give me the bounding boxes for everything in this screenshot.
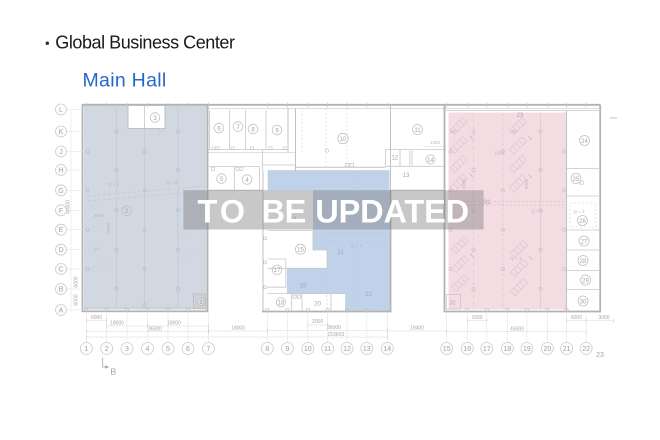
svg-text:24: 24 bbox=[581, 139, 588, 145]
svg-text:9: 9 bbox=[285, 346, 289, 353]
svg-text:L: L bbox=[59, 107, 63, 114]
svg-text:32: 32 bbox=[449, 301, 455, 307]
svg-text:14: 14 bbox=[427, 158, 434, 164]
svg-text:TOBEUPDATED: TOBEUPDATED bbox=[198, 193, 469, 229]
svg-text:Q = 3: Q = 3 bbox=[573, 209, 585, 214]
svg-text:14: 14 bbox=[383, 346, 391, 353]
svg-text:153603: 153603 bbox=[327, 332, 344, 338]
svg-text:V3: V3 bbox=[94, 247, 100, 252]
svg-text:18000: 18000 bbox=[110, 321, 124, 327]
svg-text:10: 10 bbox=[304, 346, 312, 353]
svg-text:29: 29 bbox=[582, 278, 589, 284]
svg-text:2: 2 bbox=[105, 346, 109, 353]
svg-text:11: 11 bbox=[414, 128, 421, 134]
svg-text:17: 17 bbox=[274, 268, 281, 274]
svg-text:19: 19 bbox=[523, 346, 531, 353]
svg-text:12: 12 bbox=[391, 156, 398, 162]
svg-text:22: 22 bbox=[365, 292, 372, 298]
svg-text:36000: 36000 bbox=[327, 325, 341, 331]
svg-text:F: F bbox=[59, 208, 63, 215]
svg-text:17: 17 bbox=[483, 346, 491, 353]
svg-text:23: 23 bbox=[596, 352, 604, 359]
svg-text:6000: 6000 bbox=[91, 315, 102, 321]
svg-text:9000: 9000 bbox=[106, 222, 111, 233]
svg-text:6000: 6000 bbox=[524, 178, 529, 189]
svg-text:36000: 36000 bbox=[148, 326, 162, 332]
svg-text:15: 15 bbox=[297, 248, 304, 254]
svg-text:1300: 1300 bbox=[494, 151, 505, 156]
svg-text:16: 16 bbox=[463, 346, 471, 353]
svg-text:4: 4 bbox=[146, 346, 150, 353]
svg-text:Main Hall: Main Hall bbox=[83, 70, 167, 92]
svg-text:23: 23 bbox=[517, 113, 524, 119]
svg-text:Q = 3: Q = 3 bbox=[166, 180, 178, 185]
svg-text:25: 25 bbox=[573, 177, 580, 183]
svg-text:15: 15 bbox=[443, 346, 451, 353]
svg-text:6000: 6000 bbox=[462, 178, 467, 189]
svg-text:Q = 3: Q = 3 bbox=[510, 256, 522, 261]
svg-text:Q = 3: Q = 3 bbox=[531, 209, 543, 214]
svg-text:18000: 18000 bbox=[167, 321, 181, 327]
svg-text:6000: 6000 bbox=[74, 294, 80, 305]
svg-text:K: K bbox=[59, 129, 64, 136]
svg-text:21: 21 bbox=[563, 346, 571, 353]
svg-text:22: 22 bbox=[582, 346, 590, 353]
svg-text:45000: 45000 bbox=[510, 326, 524, 332]
svg-text:45°: 45° bbox=[511, 129, 518, 134]
svg-text:31: 31 bbox=[483, 199, 491, 206]
svg-text:21: 21 bbox=[337, 250, 344, 256]
svg-text:10: 10 bbox=[340, 137, 347, 143]
svg-text:Q = 3: Q = 3 bbox=[108, 182, 120, 187]
svg-text:26: 26 bbox=[579, 219, 586, 225]
svg-text:1000: 1000 bbox=[471, 315, 482, 321]
svg-text:C: C bbox=[58, 267, 63, 274]
svg-text:11: 11 bbox=[324, 346, 331, 353]
svg-text:12: 12 bbox=[343, 346, 351, 353]
svg-text:Global Business Center: Global Business Center bbox=[55, 33, 235, 53]
svg-text:1: 1 bbox=[84, 346, 88, 353]
svg-text:18: 18 bbox=[278, 301, 285, 307]
svg-text:20: 20 bbox=[544, 346, 552, 353]
svg-text:G: G bbox=[58, 188, 63, 195]
svg-text:30: 30 bbox=[580, 299, 587, 305]
svg-text:J: J bbox=[59, 149, 63, 156]
svg-text:20: 20 bbox=[314, 302, 321, 308]
svg-text:13: 13 bbox=[403, 173, 410, 179]
svg-text:2000: 2000 bbox=[94, 213, 105, 218]
svg-text:28: 28 bbox=[580, 259, 587, 265]
svg-text:2000: 2000 bbox=[312, 319, 323, 325]
svg-text:19400: 19400 bbox=[410, 326, 424, 332]
svg-text:3: 3 bbox=[125, 346, 129, 353]
svg-text:6000: 6000 bbox=[571, 315, 582, 321]
svg-text:6: 6 bbox=[186, 346, 190, 353]
svg-text:B: B bbox=[59, 287, 64, 294]
svg-text:1300: 1300 bbox=[430, 140, 441, 145]
svg-text:18000: 18000 bbox=[231, 326, 245, 332]
svg-text:19: 19 bbox=[300, 284, 307, 290]
svg-text:3000: 3000 bbox=[598, 315, 609, 321]
svg-text:18: 18 bbox=[504, 346, 512, 353]
svg-text:27: 27 bbox=[581, 239, 588, 245]
svg-text:5: 5 bbox=[166, 346, 170, 353]
svg-text:7: 7 bbox=[207, 346, 211, 353]
svg-text:Q = 3: Q = 3 bbox=[351, 243, 363, 248]
svg-text:H: H bbox=[58, 168, 63, 175]
svg-text:A: A bbox=[59, 308, 64, 315]
svg-text:8: 8 bbox=[265, 346, 269, 353]
svg-text:13: 13 bbox=[363, 346, 371, 353]
svg-text:E: E bbox=[59, 227, 64, 234]
svg-text:6000: 6000 bbox=[74, 276, 80, 287]
svg-text:45°: 45° bbox=[450, 129, 457, 134]
svg-text:D: D bbox=[58, 247, 63, 254]
svg-text:B: B bbox=[111, 367, 117, 377]
